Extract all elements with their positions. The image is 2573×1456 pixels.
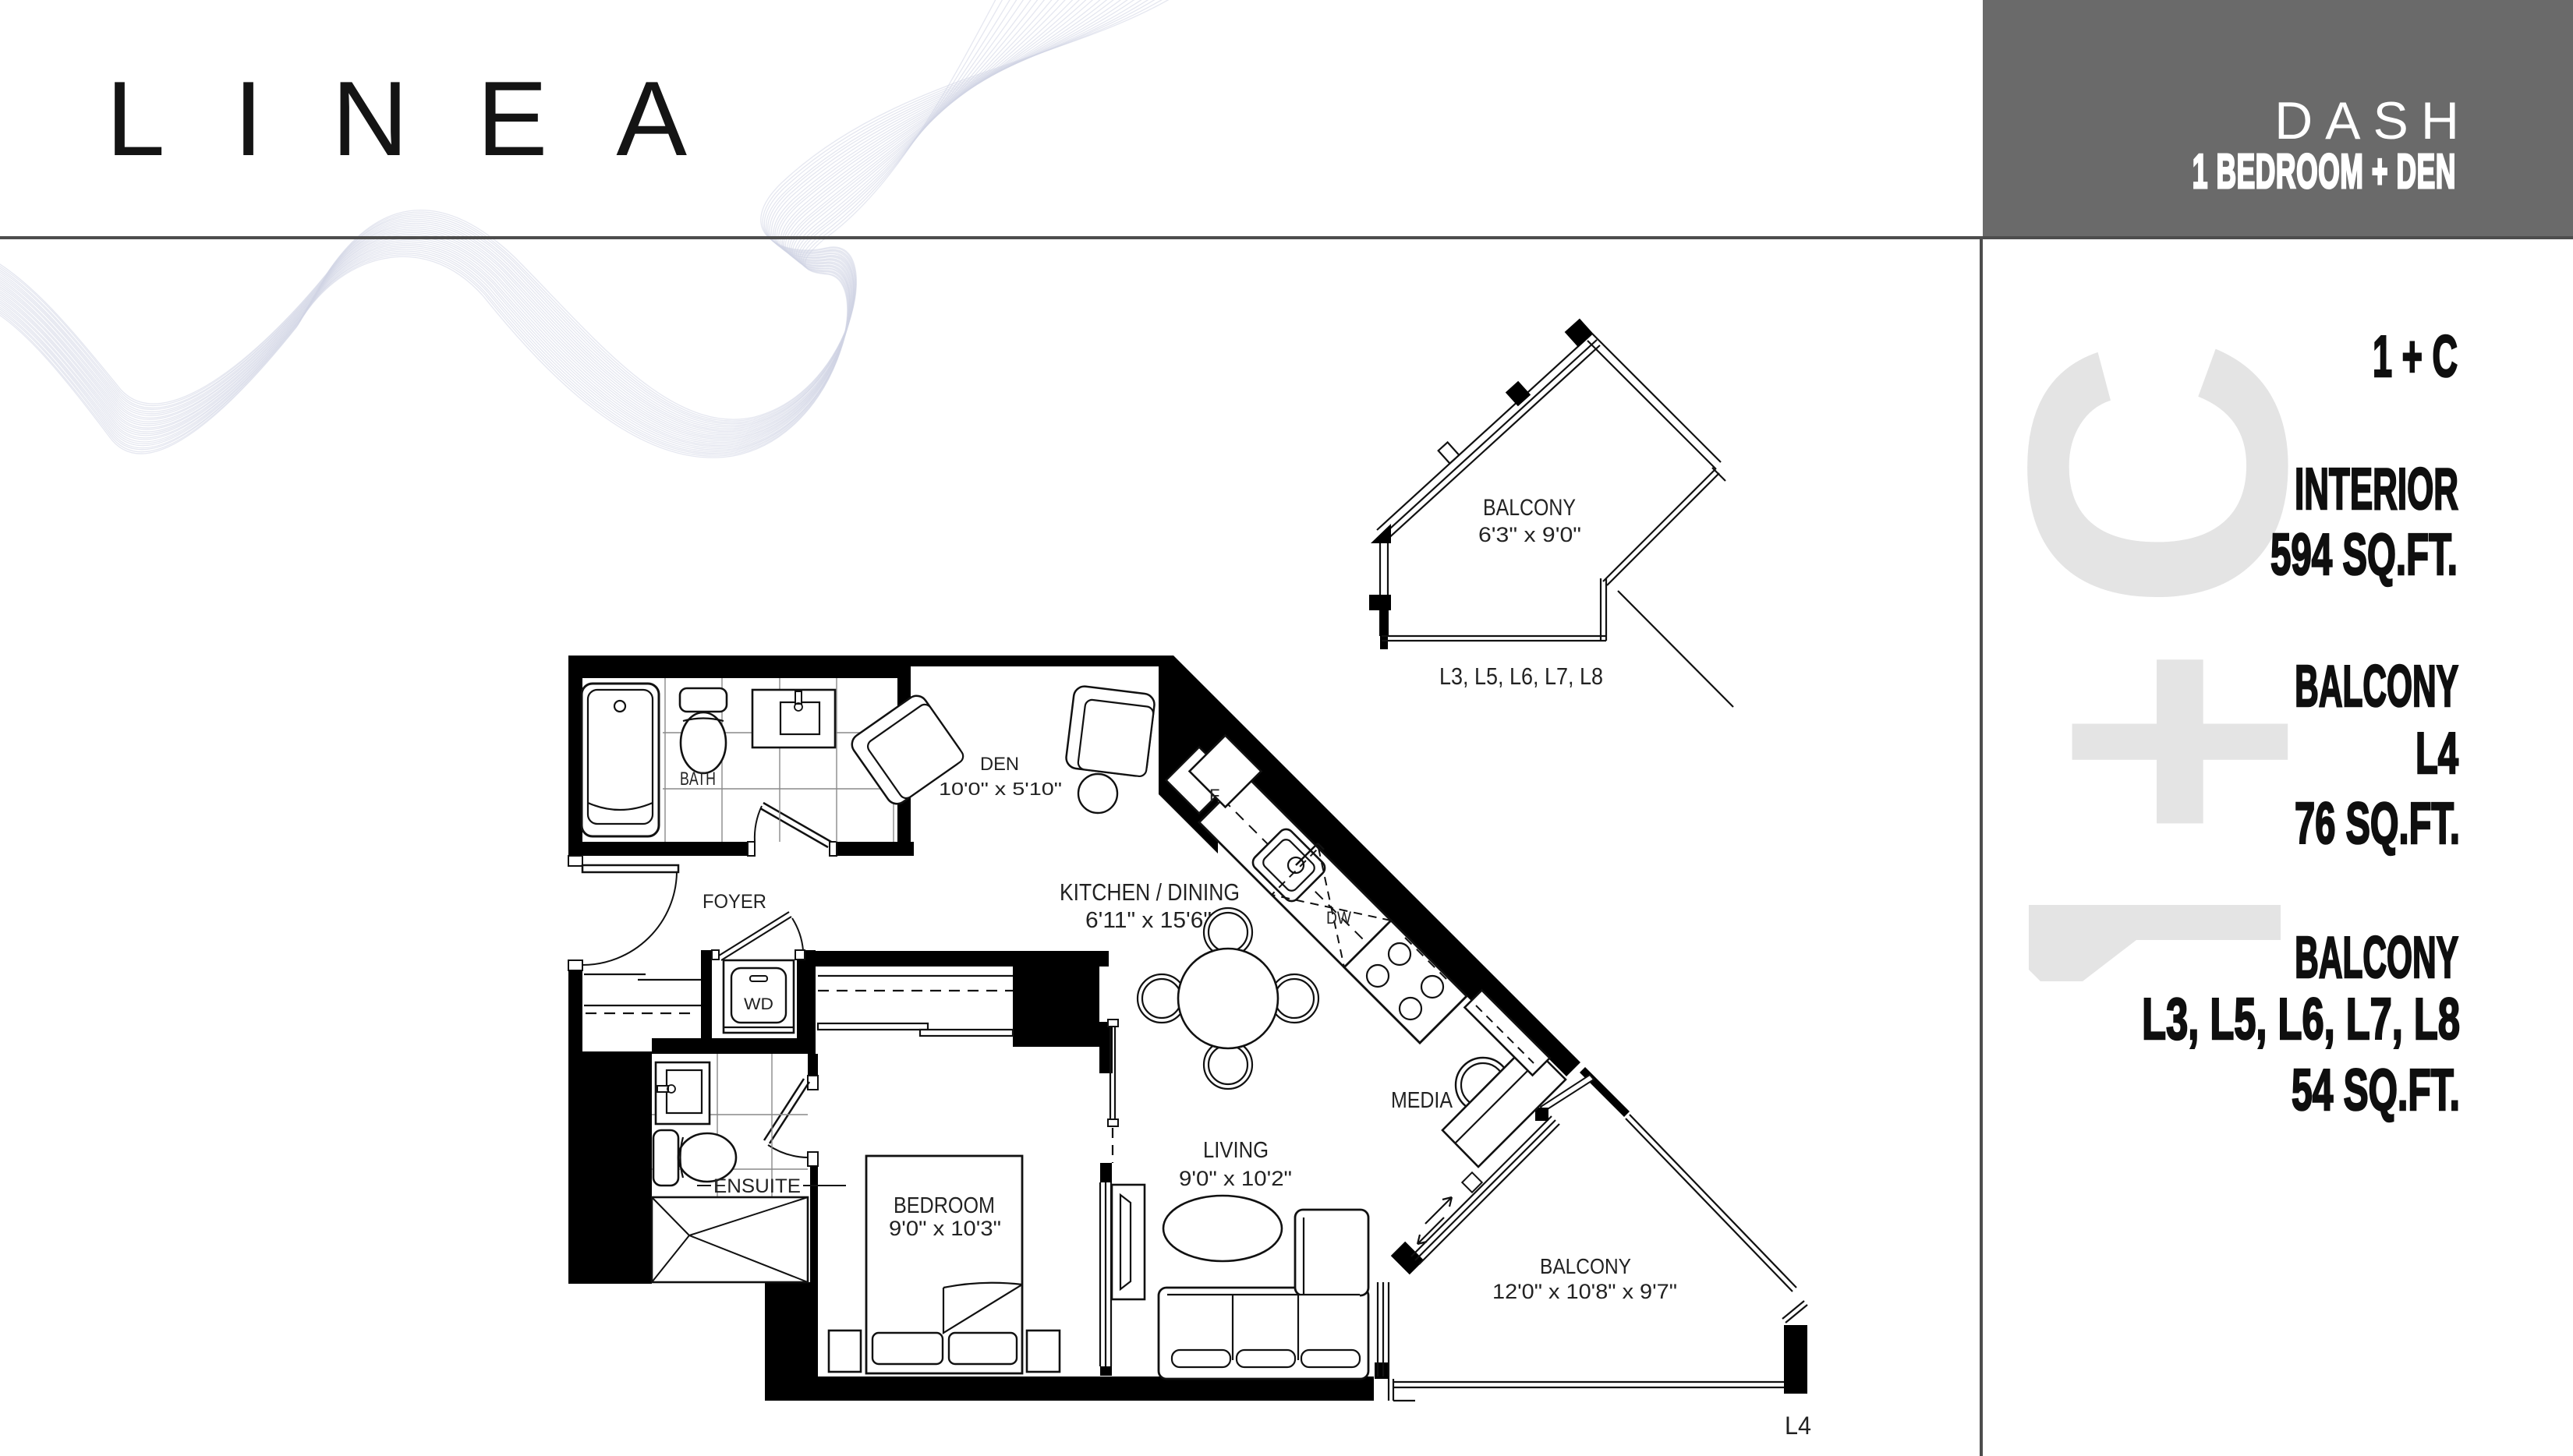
- svg-text:DASH: DASH: [2274, 91, 2472, 150]
- svg-text:BALCONY: BALCONY: [2295, 653, 2458, 719]
- svg-text:10'0" x 5'10": 10'0" x 5'10": [939, 779, 1062, 799]
- svg-text:6'11" x 15'6": 6'11" x 15'6": [1085, 908, 1212, 933]
- svg-text:KITCHEN / DINING: KITCHEN / DINING: [1060, 878, 1240, 906]
- svg-text:1 + C: 1 + C: [2373, 324, 2458, 390]
- svg-text:F: F: [1209, 786, 1219, 805]
- svg-text:1 BEDROOM + DEN: 1 BEDROOM + DEN: [2193, 143, 2456, 198]
- svg-text:BATH: BATH: [680, 769, 716, 790]
- svg-text:MEDIA: MEDIA: [1391, 1088, 1453, 1113]
- svg-text:54 SQ.FT.: 54 SQ.FT.: [2292, 1058, 2460, 1122]
- svg-text:L3, L5, L6, L7, L8: L3, L5, L6, L7, L8: [1439, 663, 1603, 690]
- svg-text:WD: WD: [744, 995, 773, 1013]
- svg-text:9'0" x 10'2": 9'0" x 10'2": [1179, 1167, 1292, 1190]
- svg-text:L4: L4: [1785, 1412, 1811, 1440]
- svg-text:L3, L5, L6, L7, L8: L3, L5, L6, L7, L8: [2142, 986, 2460, 1051]
- svg-text:BALCONY: BALCONY: [2295, 924, 2458, 990]
- svg-text:12'0" x 10'8" x 9'7": 12'0" x 10'8" x 9'7": [1492, 1280, 1677, 1303]
- svg-text:6'3" x 9'0": 6'3" x 9'0": [1478, 523, 1581, 546]
- svg-text:LIVING: LIVING: [1203, 1138, 1269, 1163]
- svg-text:9'0" x 10'3": 9'0" x 10'3": [889, 1217, 1001, 1240]
- svg-text:INTERIOR: INTERIOR: [2295, 457, 2458, 522]
- svg-text:DW: DW: [1326, 908, 1351, 928]
- svg-text:BALCONY: BALCONY: [1540, 1254, 1631, 1278]
- svg-text:594 SQ.FT.: 594 SQ.FT.: [2270, 522, 2458, 588]
- svg-text:BALCONY: BALCONY: [1483, 495, 1576, 521]
- svg-text:LINEA: LINEA: [106, 59, 756, 178]
- svg-text:FOYER: FOYER: [703, 891, 766, 913]
- svg-text:DEN: DEN: [980, 754, 1019, 775]
- svg-text:L4: L4: [2416, 721, 2458, 786]
- svg-text:76 SQ.FT.: 76 SQ.FT.: [2295, 791, 2460, 857]
- svg-text:BEDROOM: BEDROOM: [894, 1193, 995, 1218]
- svg-text:ENSUITE: ENSUITE: [713, 1175, 801, 1197]
